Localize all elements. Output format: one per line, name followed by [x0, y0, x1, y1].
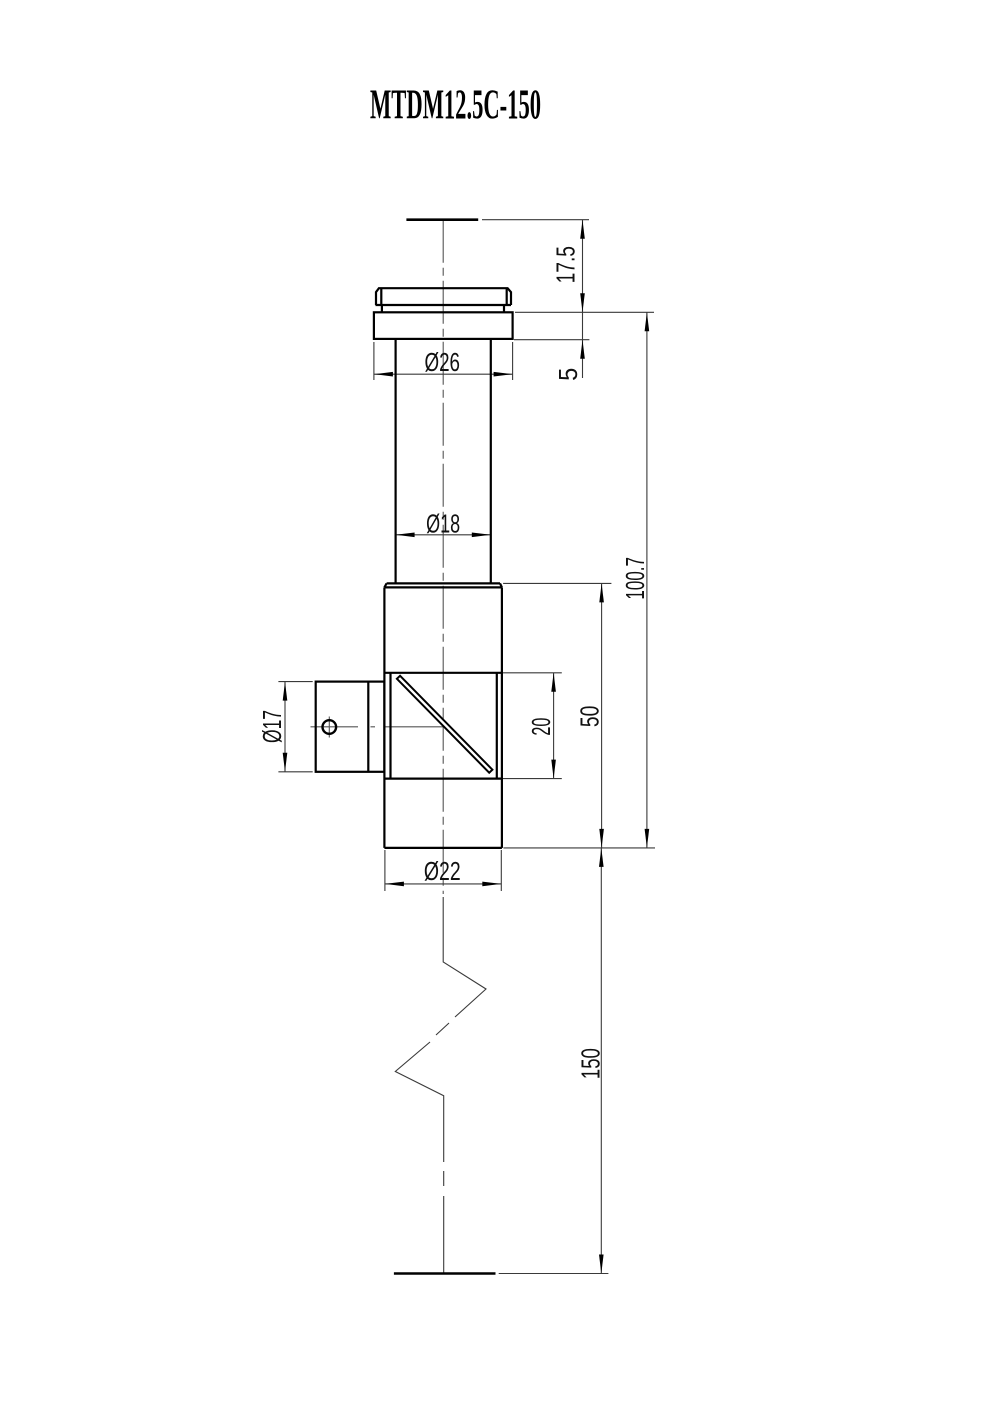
svg-text:Ø22: Ø22: [424, 856, 461, 886]
svg-text:17.5: 17.5: [551, 246, 581, 283]
svg-text:150: 150: [576, 1048, 606, 1079]
svg-text:Ø17: Ø17: [257, 710, 287, 743]
svg-text:MTDM12.5C-150: MTDM12.5C-150: [370, 82, 541, 128]
svg-text:20: 20: [526, 718, 556, 736]
svg-text:100.7: 100.7: [620, 557, 650, 600]
svg-text:5: 5: [553, 368, 583, 381]
svg-text:50: 50: [575, 706, 605, 727]
svg-text:Ø18: Ø18: [426, 509, 460, 539]
svg-text:Ø26: Ø26: [425, 347, 461, 377]
